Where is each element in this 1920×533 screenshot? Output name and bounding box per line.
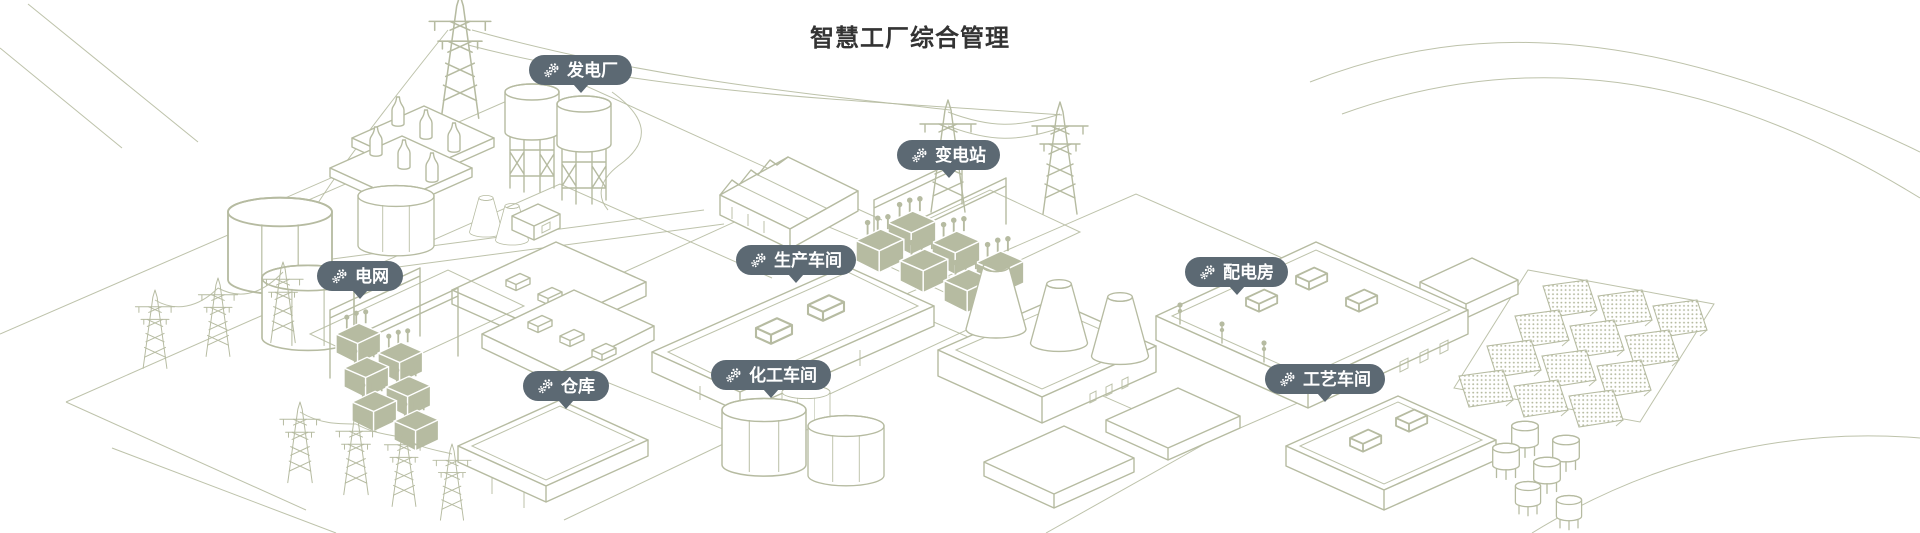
map-pin-process-workshop[interactable]: 工艺车间 bbox=[1265, 364, 1385, 394]
gears-icon bbox=[1199, 264, 1216, 281]
pin-label: 配电房 bbox=[1223, 264, 1274, 281]
factory-map: 智慧工厂综合管理 发电厂 变电站 电网 bbox=[0, 0, 1920, 533]
chemical-tanks bbox=[722, 385, 884, 485]
page-title: 智慧工厂综合管理 bbox=[810, 18, 1010, 53]
gears-icon bbox=[537, 378, 554, 395]
gears-icon bbox=[911, 147, 928, 164]
gears-icon bbox=[725, 367, 742, 384]
hopper-tanks-cluster bbox=[1493, 421, 1582, 529]
map-pin-production-workshop[interactable]: 生产车间 bbox=[736, 245, 856, 275]
pin-label: 电网 bbox=[355, 268, 389, 285]
small-cones-and-house bbox=[470, 196, 561, 246]
transmission-tower-main bbox=[429, 0, 491, 118]
map-pin-chemical-workshop[interactable]: 化工车间 bbox=[711, 360, 831, 390]
gears-icon bbox=[1279, 371, 1296, 388]
map-pin-substation[interactable]: 变电站 bbox=[897, 140, 1000, 170]
map-pin-distribution-room[interactable]: 配电房 bbox=[1185, 257, 1288, 287]
pin-label: 仓库 bbox=[561, 378, 595, 395]
factory-illustration bbox=[0, 0, 1920, 533]
gears-icon bbox=[331, 268, 348, 285]
gears-icon bbox=[543, 62, 560, 79]
map-pin-power-grid[interactable]: 电网 bbox=[317, 261, 403, 291]
map-pin-warehouse[interactable]: 仓库 bbox=[523, 371, 609, 401]
warehouse-building bbox=[458, 400, 648, 508]
power-plant-elevated-tanks bbox=[505, 84, 611, 204]
pin-label: 发电厂 bbox=[567, 62, 618, 79]
pin-label: 化工车间 bbox=[749, 367, 817, 384]
sheds-mid-left bbox=[452, 242, 654, 386]
pin-label: 工艺车间 bbox=[1303, 371, 1371, 388]
pin-label: 变电站 bbox=[935, 147, 986, 164]
map-pin-power-plant[interactable]: 发电厂 bbox=[529, 55, 632, 85]
sawtooth-factory bbox=[720, 157, 858, 249]
process-workshop-building bbox=[1286, 396, 1496, 510]
pin-label: 生产车间 bbox=[774, 252, 842, 269]
gears-icon bbox=[750, 252, 767, 269]
